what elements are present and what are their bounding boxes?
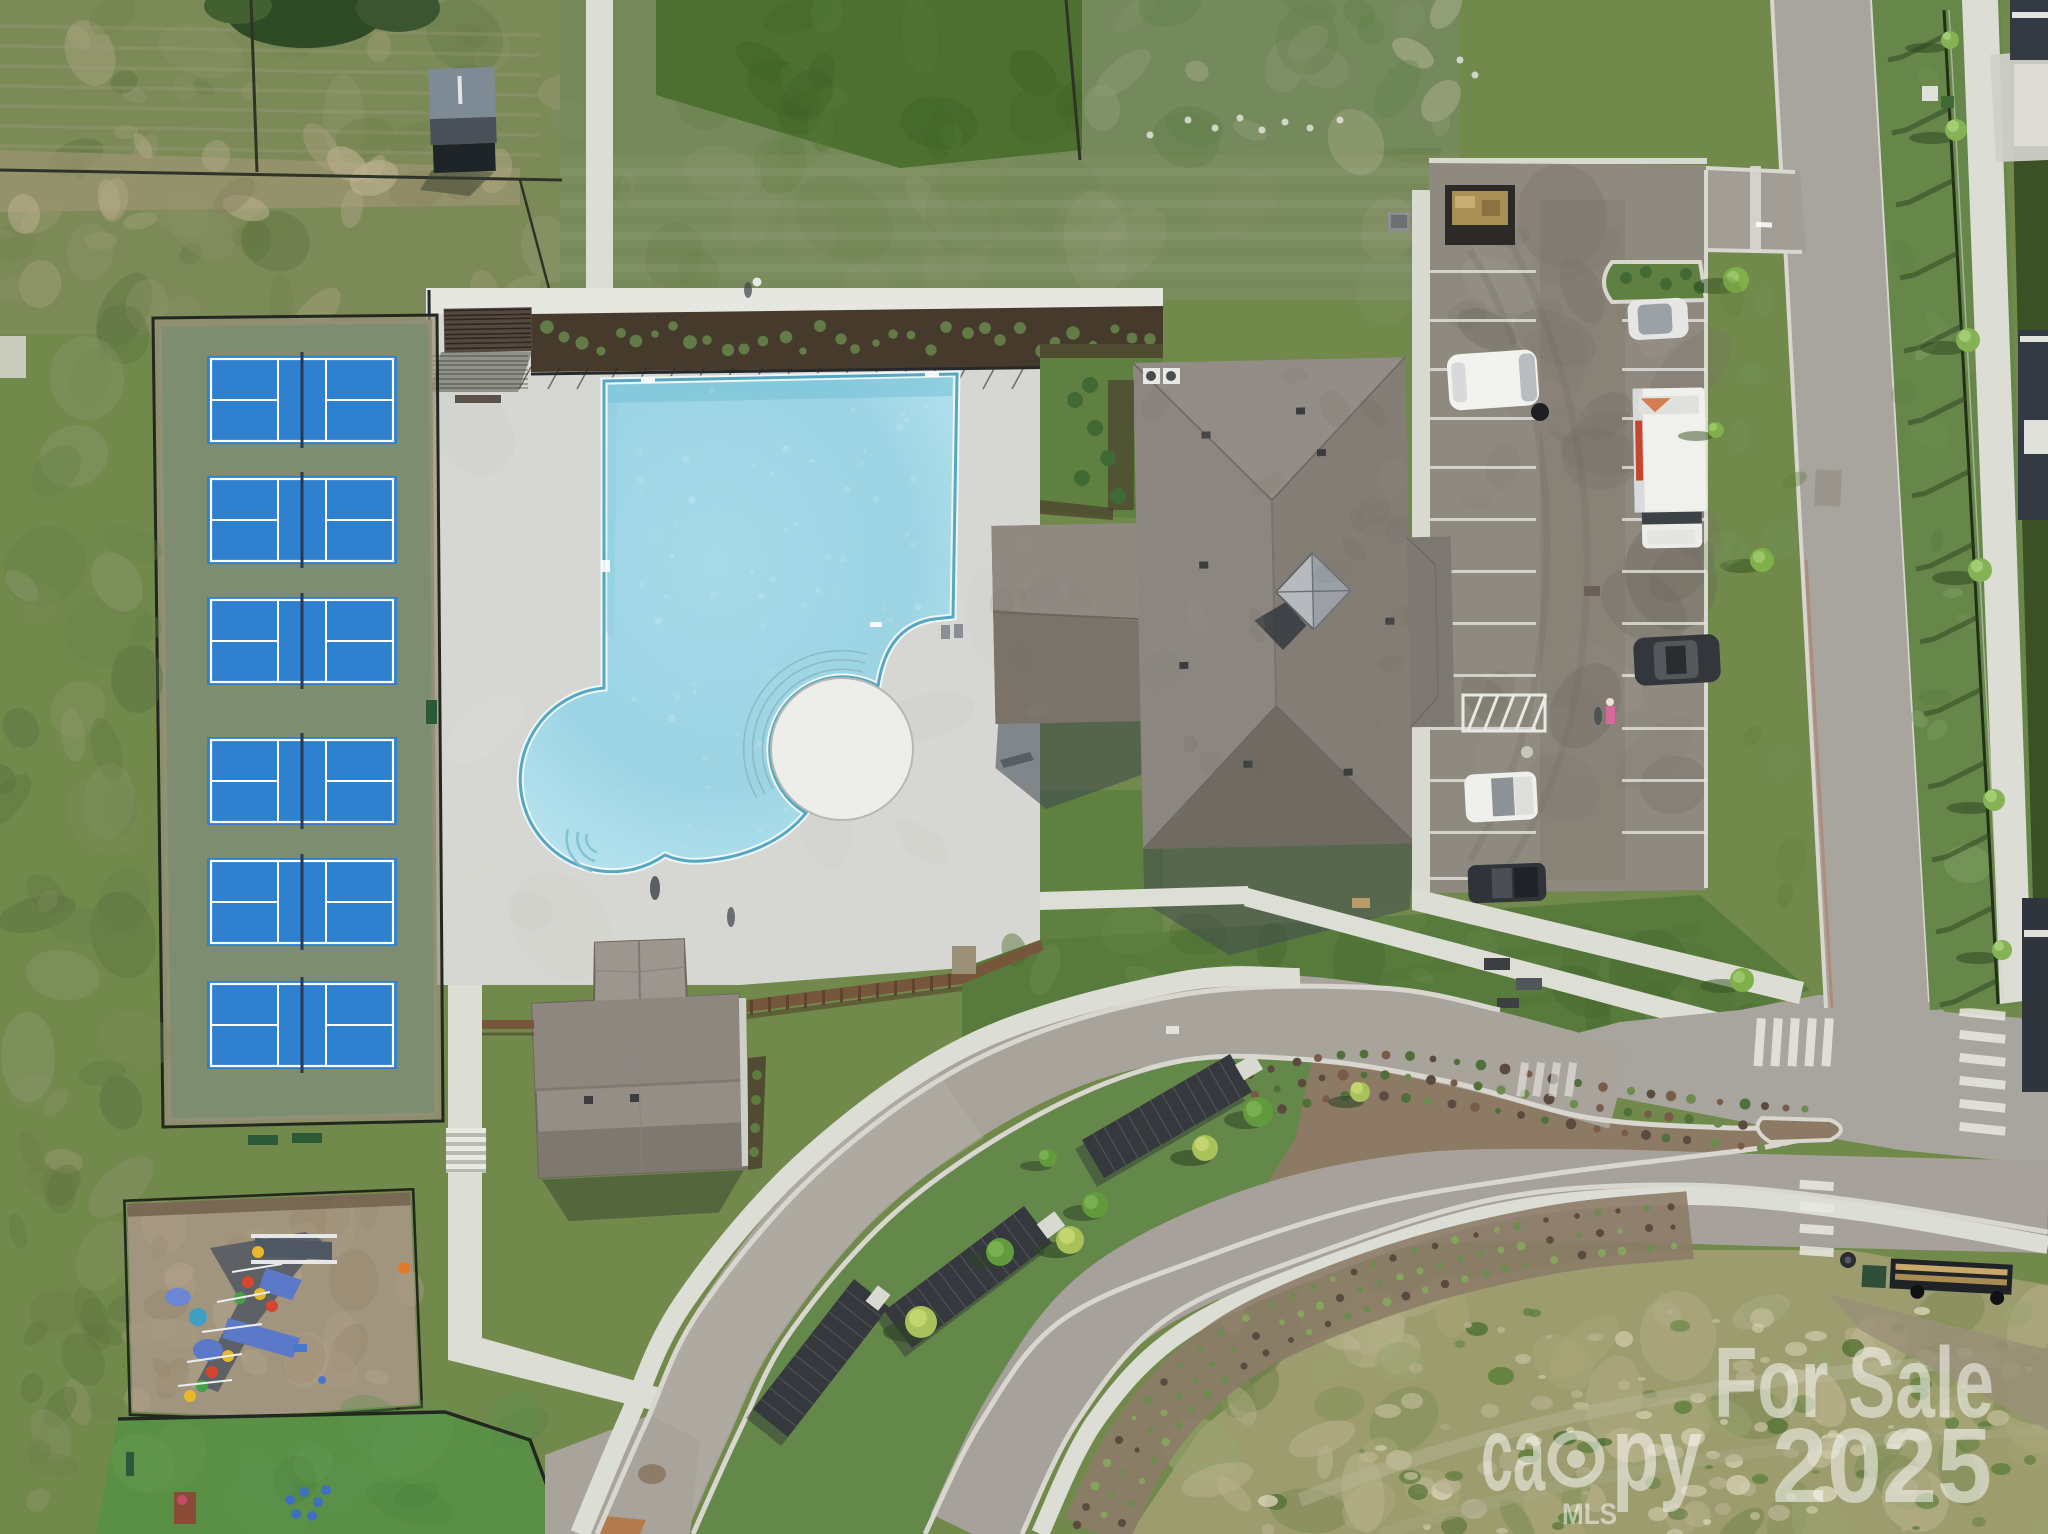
svg-text:MLS: MLS (1562, 1498, 1617, 1531)
svg-text:2025: 2025 (1772, 1407, 1992, 1525)
svg-text:py: py (1612, 1395, 1702, 1513)
svg-text:ca: ca (1481, 1395, 1546, 1513)
